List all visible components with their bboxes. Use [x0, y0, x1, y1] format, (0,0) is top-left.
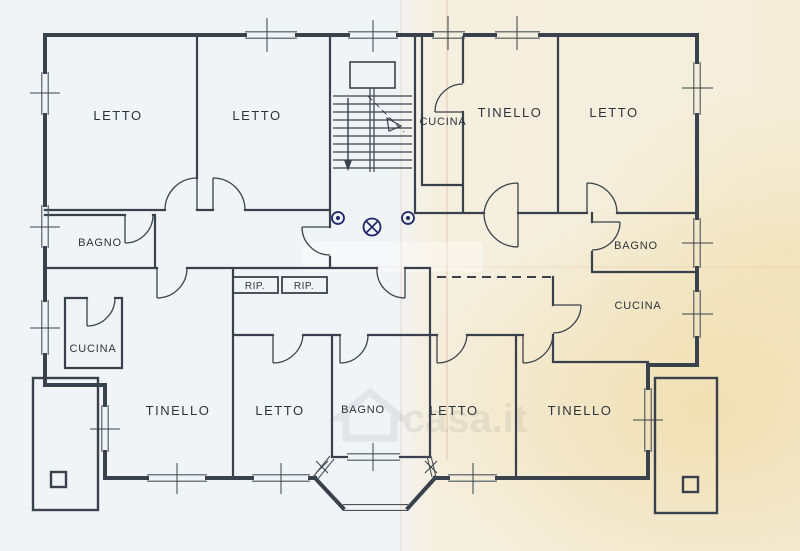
room-label-cucina-l: CUCINA — [70, 343, 117, 355]
landing-symbols — [332, 212, 414, 236]
room-label-rip-1: RIP. — [245, 281, 265, 292]
room-label-bagno-l: BAGNO — [78, 237, 122, 249]
floorplan-drawing: LETTO LETTO BAGNO CUCINA TINELLO LETTO B… — [0, 0, 800, 551]
room-label-tinello-tr: TINELLO — [478, 105, 543, 120]
staircase — [333, 62, 412, 172]
watermark: casa.it — [338, 392, 527, 441]
scan-crease-lines — [330, 0, 800, 551]
balcony-right-drain — [683, 477, 698, 492]
room-label-cucina-tc: CUCINA — [420, 116, 467, 128]
balcony-left-drain — [51, 472, 66, 487]
room-label-cucina-r: CUCINA — [615, 300, 662, 312]
room-label-letto-bl: LETTO — [255, 403, 304, 418]
floorplan-scan: LETTO LETTO BAGNO CUCINA TINELLO LETTO B… — [0, 0, 800, 551]
ceiling-light-icon — [364, 219, 381, 236]
door-viewer-icon — [332, 212, 344, 224]
room-label-bagno-r: BAGNO — [614, 240, 658, 252]
room-label-letto-tl1: LETTO — [93, 108, 142, 123]
room-label-tinello-bl: TINELLO — [146, 403, 211, 418]
room-label-letto-tr: LETTO — [589, 105, 638, 120]
watermark-text: casa.it — [403, 397, 528, 441]
room-label-rip-2: RIP. — [294, 281, 314, 292]
door-viewer-icon — [402, 212, 414, 224]
room-label-letto-tl2: LETTO — [232, 108, 281, 123]
balcony-left — [33, 378, 98, 510]
room-label-tinello-br: TINELLO — [548, 403, 613, 418]
door-swings — [87, 84, 620, 363]
